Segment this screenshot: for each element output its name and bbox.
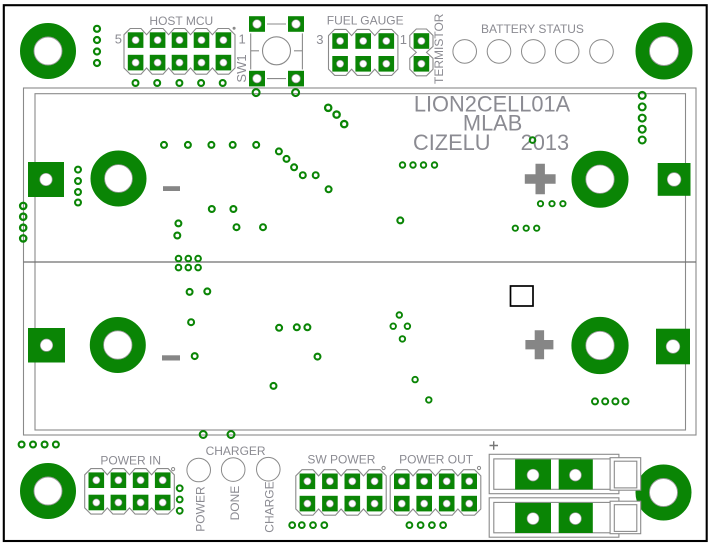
svg-text:DONE: DONE bbox=[228, 486, 242, 521]
svg-text:SW1: SW1 bbox=[234, 54, 249, 82]
svg-text:3: 3 bbox=[316, 32, 323, 47]
svg-text:2013: 2013 bbox=[521, 130, 570, 155]
svg-text:CHARGER: CHARGER bbox=[206, 444, 266, 458]
svg-text:TERMISTOR: TERMISTOR bbox=[432, 13, 446, 84]
svg-text:5: 5 bbox=[115, 31, 122, 46]
svg-text:POWER: POWER bbox=[193, 486, 207, 532]
svg-text:1: 1 bbox=[400, 32, 407, 47]
svg-text:SW POWER: SW POWER bbox=[307, 452, 375, 466]
svg-text:1: 1 bbox=[239, 31, 246, 46]
svg-text:CIZELU: CIZELU bbox=[413, 130, 491, 155]
svg-text:BATTERY STATUS: BATTERY STATUS bbox=[481, 22, 584, 36]
svg-text:POWER OUT: POWER OUT bbox=[399, 452, 474, 466]
svg-text:HOST MCU: HOST MCU bbox=[149, 14, 213, 28]
svg-text:CHARGE: CHARGE bbox=[263, 481, 277, 532]
svg-text:POWER IN: POWER IN bbox=[100, 454, 161, 468]
svg-text:FUEL GAUGE: FUEL GAUGE bbox=[327, 14, 404, 28]
